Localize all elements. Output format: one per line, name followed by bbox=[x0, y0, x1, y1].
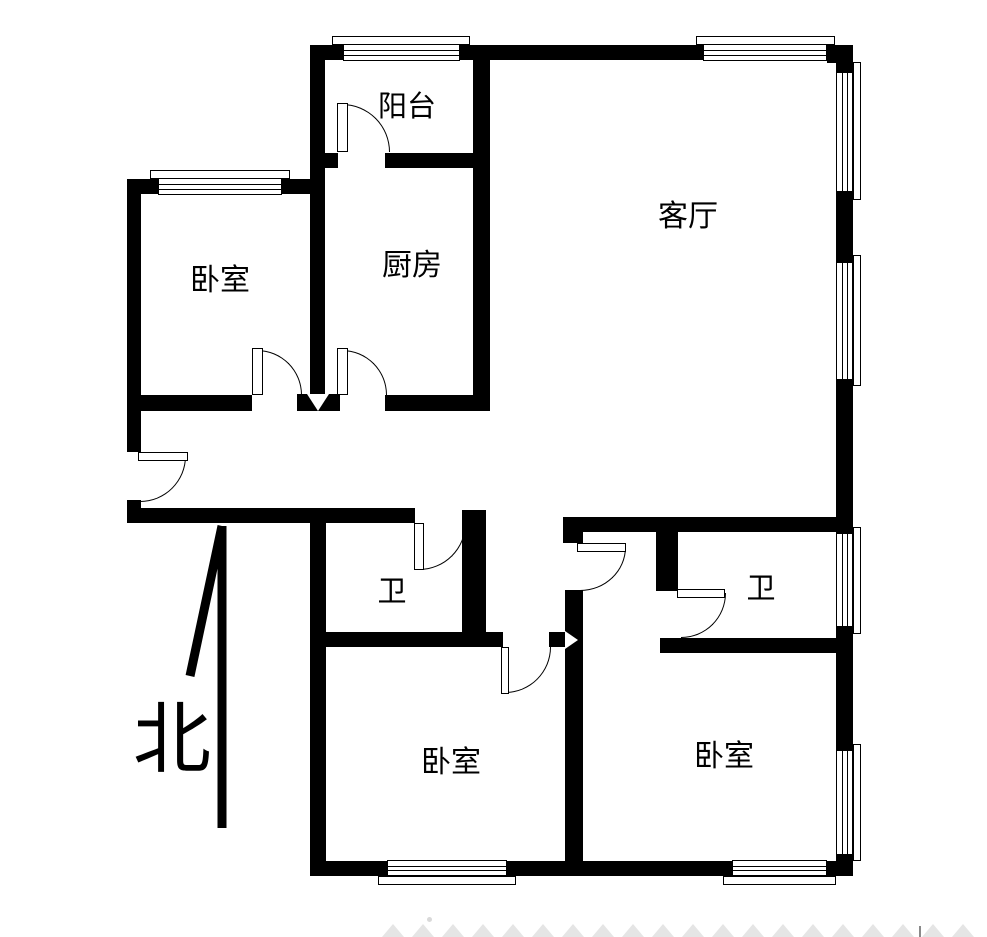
wall-south-seg1 bbox=[310, 861, 387, 876]
door-leaf-bedroom-nw bbox=[252, 348, 263, 395]
wall-east-seg2 bbox=[836, 192, 853, 262]
window-frame-south1 bbox=[378, 876, 516, 885]
door-leaf-bath1 bbox=[414, 523, 424, 570]
room-label-bedroom-nw: 卧室 bbox=[190, 255, 250, 299]
wall-south-seg3 bbox=[827, 861, 852, 876]
door-swing-entry bbox=[140, 456, 186, 502]
wall-bath2-bottom bbox=[660, 638, 852, 653]
door-swing-bedroom-south bbox=[505, 647, 551, 693]
wall-kitchen-bottom bbox=[385, 395, 490, 411]
window-frame-east4 bbox=[853, 744, 861, 861]
watermark-pattern bbox=[378, 922, 987, 937]
window-bedroom-nw bbox=[158, 178, 282, 195]
window-frame-east2 bbox=[853, 255, 861, 386]
room-label-living-room: 客厅 bbox=[658, 191, 718, 235]
room-label-kitchen: 厨房 bbox=[382, 240, 442, 284]
door-leaf-bath2 bbox=[677, 589, 725, 598]
window-living-north bbox=[703, 44, 827, 61]
door-leaf-vestibule bbox=[577, 543, 626, 552]
wall-bedroom-nw-bottom bbox=[127, 395, 252, 411]
window-living-east-1 bbox=[836, 72, 853, 192]
entry-arrow-down-icon bbox=[307, 394, 329, 411]
wall-living-south bbox=[563, 517, 852, 532]
wall-east-seg3 bbox=[836, 380, 853, 533]
room-label-bedroom-south: 卧室 bbox=[421, 737, 481, 781]
window-bedroom-se-east bbox=[836, 750, 853, 855]
watermark-tick bbox=[919, 926, 921, 937]
wall-west-upper bbox=[127, 179, 141, 452]
floor-plan: 阳台 厨房 卧室 客厅 卫 卫 卧室 卧室 北 bbox=[0, 0, 987, 937]
door-swing-vestibule bbox=[580, 547, 626, 591]
wall-bath1-bottom-stub bbox=[549, 632, 565, 647]
window-bedroom-south bbox=[387, 860, 507, 876]
wall-balcony-divider-left bbox=[310, 153, 338, 168]
wall-bath2-west bbox=[656, 517, 678, 591]
window-frame-east3 bbox=[853, 527, 861, 634]
door-leaf-kitchen bbox=[337, 348, 348, 395]
room-label-balcony: 阳台 bbox=[378, 83, 436, 125]
door-swing-kitchen bbox=[342, 350, 387, 395]
window-frame-south2 bbox=[723, 876, 836, 885]
window-bath2-east bbox=[836, 533, 853, 627]
wall-bath1-east bbox=[462, 510, 486, 647]
door-leaf-entry bbox=[138, 452, 188, 461]
room-label-bathroom-left: 卫 bbox=[377, 568, 406, 610]
entry-arrow-right-icon bbox=[565, 631, 578, 649]
door-leaf-bedroom-south bbox=[501, 647, 509, 694]
wall-north-living bbox=[460, 45, 703, 60]
door-swing-bedroom-nw bbox=[257, 350, 302, 395]
wall-bedroom-nw-top-right bbox=[282, 179, 310, 194]
room-label-bathroom-right: 卫 bbox=[746, 565, 775, 607]
wall-balcony-kitchen-west bbox=[310, 45, 325, 395]
door-swing-bath2 bbox=[681, 593, 726, 638]
door-leaf-balcony bbox=[337, 103, 348, 152]
room-label-bedroom-se: 卧室 bbox=[694, 731, 754, 775]
wall-separator-stub-top bbox=[563, 517, 583, 543]
wall-corridor-south-left bbox=[127, 508, 415, 523]
wall-kitchen-living-divider bbox=[473, 45, 490, 410]
door-swing-bath1 bbox=[419, 523, 466, 570]
wall-south-seg2 bbox=[507, 861, 732, 876]
window-frame-east1 bbox=[853, 62, 861, 200]
wall-east-seg4 bbox=[836, 627, 853, 750]
window-balcony-north bbox=[343, 44, 460, 61]
north-label: 北 bbox=[133, 677, 211, 789]
wall-bath1-west bbox=[310, 508, 326, 876]
window-living-east-2 bbox=[836, 262, 853, 380]
wall-bath1-bottom bbox=[326, 632, 503, 647]
window-bedroom-se-south bbox=[732, 860, 827, 876]
